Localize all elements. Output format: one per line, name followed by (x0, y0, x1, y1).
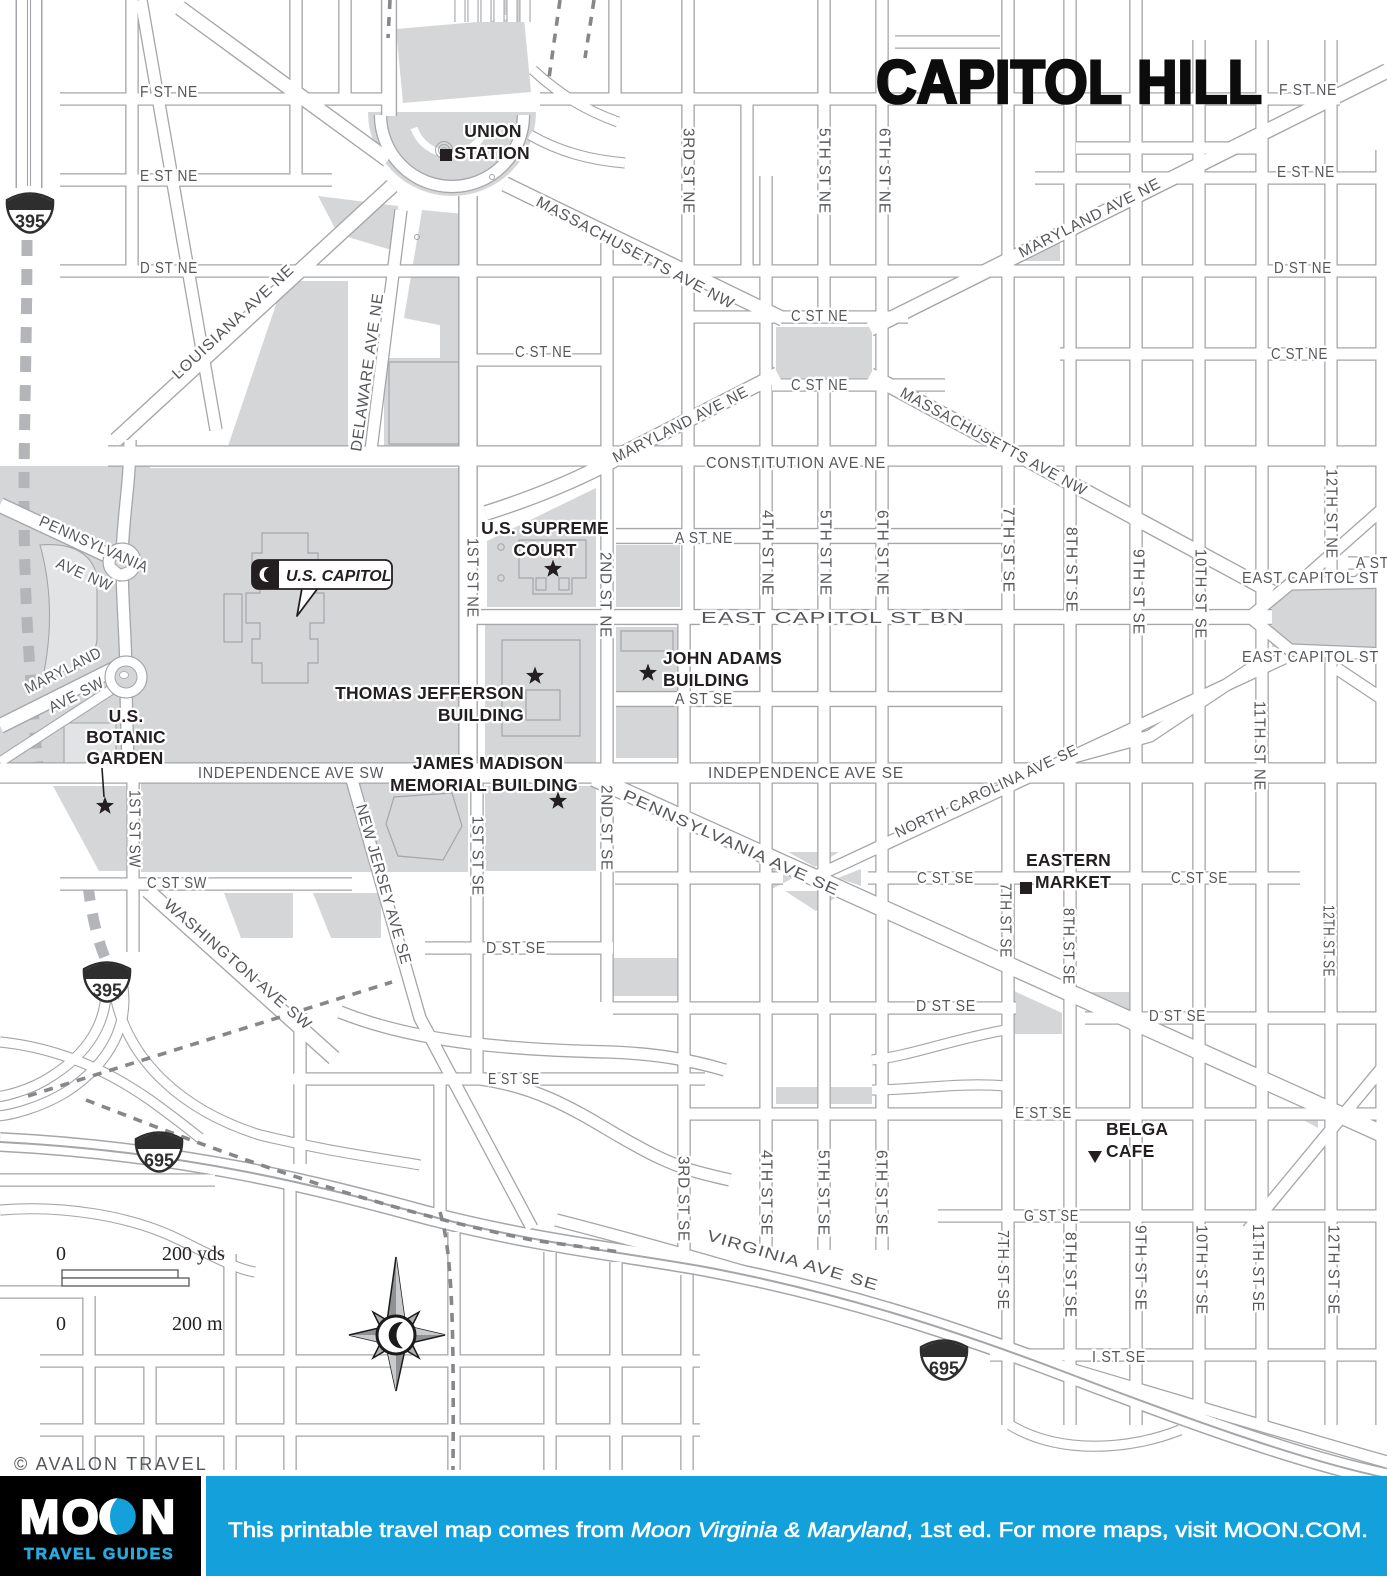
svg-text:12TH ST SE: 12TH ST SE (1320, 905, 1337, 977)
svg-text:7TH ST SE: 7TH ST SE (994, 1230, 1011, 1310)
svg-text:© AVALON TRAVEL: © AVALON TRAVEL (14, 1454, 208, 1474)
svg-text:C ST NE: C ST NE (791, 377, 848, 394)
svg-text:D ST SE: D ST SE (486, 940, 546, 957)
svg-text:JOHN ADAMS: JOHN ADAMS (663, 648, 782, 668)
svg-text:C ST SW: C ST SW (147, 875, 207, 892)
svg-text:10TH ST SE: 10TH ST SE (1192, 549, 1209, 639)
svg-text:MARKET: MARKET (1035, 872, 1111, 892)
svg-text:695: 695 (144, 1151, 174, 1171)
svg-text:N: N (141, 1490, 175, 1543)
svg-text:INDEPENDENCE AVE SE: INDEPENDENCE AVE SE (708, 765, 904, 782)
svg-text:5TH ST NE: 5TH ST NE (816, 128, 833, 214)
svg-text:EAST CAPITOL ST: EAST CAPITOL ST (1242, 649, 1379, 666)
svg-text:M: M (20, 1490, 59, 1543)
svg-text:BUILDING: BUILDING (438, 705, 524, 725)
svg-text:E ST SE: E ST SE (1015, 1105, 1072, 1122)
svg-text:12TH ST NE: 12TH ST NE (1323, 469, 1340, 559)
svg-text:I ST SE: I ST SE (1092, 1349, 1146, 1366)
svg-text:D ST NE: D ST NE (1274, 260, 1332, 277)
svg-text:D ST SE: D ST SE (916, 998, 976, 1015)
svg-text:This printable travel map come: This printable travel map comes from Moo… (228, 1518, 1368, 1542)
svg-text:O: O (62, 1490, 99, 1543)
svg-text:7TH ST SE: 7TH ST SE (997, 883, 1014, 958)
svg-text:A ST NE: A ST NE (675, 530, 733, 547)
svg-text:7TH ST SE: 7TH ST SE (1000, 507, 1017, 593)
svg-text:U.S.: U.S. (109, 706, 144, 726)
svg-text:6TH ST NE: 6TH ST NE (874, 510, 891, 596)
svg-text:D ST SE: D ST SE (1149, 1008, 1206, 1025)
svg-text:3RD ST NE: 3RD ST NE (680, 128, 697, 214)
svg-text:395: 395 (15, 212, 45, 232)
svg-text:F ST NE: F ST NE (140, 84, 198, 101)
svg-text:TRAVEL GUIDES: TRAVEL GUIDES (24, 1546, 174, 1563)
svg-text:11TH ST SE: 11TH ST SE (1249, 1224, 1266, 1312)
svg-text:CONSTITUTION AVE NE: CONSTITUTION AVE NE (706, 455, 886, 472)
svg-text:BUILDING: BUILDING (663, 670, 749, 690)
svg-text:6TH ST SE: 6TH ST SE (873, 1150, 890, 1236)
svg-text:0: 0 (56, 1243, 66, 1265)
svg-text:E ST NE: E ST NE (1277, 164, 1335, 181)
svg-text:9TH ST SE: 9TH ST SE (1130, 549, 1147, 635)
svg-text:2ND ST NE: 2ND ST NE (597, 552, 614, 638)
svg-text:9TH ST SE: 9TH ST SE (1132, 1225, 1149, 1311)
svg-text:G ST SE: G ST SE (1024, 1208, 1079, 1225)
svg-text:4TH ST NE: 4TH ST NE (759, 510, 776, 596)
svg-text:MEMORIAL BUILDING: MEMORIAL BUILDING (390, 775, 578, 795)
svg-text:EAST CAPITOL ST BN: EAST CAPITOL ST BN (701, 610, 965, 627)
svg-text:1ST ST SW: 1ST ST SW (126, 790, 143, 868)
svg-text:INDEPENDENCE AVE SW: INDEPENDENCE AVE SW (198, 765, 384, 782)
svg-text:8TH ST SE: 8TH ST SE (1062, 1232, 1079, 1318)
svg-text:200 m: 200 m (172, 1313, 223, 1335)
svg-text:D ST NE: D ST NE (140, 260, 198, 277)
svg-text:A ST SE: A ST SE (675, 691, 733, 708)
svg-text:695: 695 (929, 1359, 959, 1379)
svg-text:A ST NE: A ST NE (1356, 555, 1387, 572)
svg-text:COURT: COURT (513, 540, 576, 560)
svg-text:F ST NE: F ST NE (1279, 82, 1337, 99)
svg-text:EASTERN: EASTERN (1026, 850, 1111, 870)
svg-text:5TH ST SE: 5TH ST SE (815, 1150, 832, 1236)
svg-text:3RD ST SE: 3RD ST SE (675, 1156, 692, 1242)
svg-text:0: 0 (56, 1313, 66, 1335)
svg-text:2ND ST SE: 2ND ST SE (598, 785, 615, 871)
svg-text:UNION: UNION (464, 121, 521, 141)
svg-text:200 yds: 200 yds (162, 1243, 225, 1265)
svg-text:4TH ST SE: 4TH ST SE (758, 1150, 775, 1236)
svg-text:5TH ST NE: 5TH ST NE (817, 510, 834, 596)
svg-text:U.S. SUPREME: U.S. SUPREME (481, 518, 609, 538)
svg-text:12TH ST SE: 12TH ST SE (1325, 1225, 1342, 1315)
svg-text:1ST ST NE: 1ST ST NE (464, 538, 481, 618)
svg-text:C ST SE: C ST SE (917, 870, 974, 887)
svg-text:C ST SE: C ST SE (1171, 870, 1228, 887)
svg-text:CAFE: CAFE (1106, 1141, 1154, 1161)
svg-text:THOMAS JEFFERSON: THOMAS JEFFERSON (335, 683, 524, 703)
svg-text:BELGA: BELGA (1106, 1119, 1168, 1139)
svg-text:STATION: STATION (454, 143, 530, 163)
svg-text:CAPITOL HILL: CAPITOL HILL (876, 48, 1262, 116)
svg-text:C ST NE: C ST NE (791, 308, 848, 325)
svg-text:GARDEN: GARDEN (86, 748, 163, 768)
svg-text:C ST NE: C ST NE (1271, 346, 1328, 363)
svg-text:11TH ST NE: 11TH ST NE (1251, 701, 1268, 791)
svg-text:JAMES MADISON: JAMES MADISON (413, 753, 563, 773)
svg-text:10TH ST SE: 10TH ST SE (1193, 1225, 1210, 1315)
svg-text:8TH ST SE: 8TH ST SE (1063, 527, 1080, 613)
svg-text:BOTANIC: BOTANIC (86, 727, 166, 747)
svg-text:E ST NE: E ST NE (140, 168, 198, 185)
svg-text:6TH ST NE: 6TH ST NE (876, 128, 893, 214)
svg-text:E ST SE: E ST SE (488, 1071, 540, 1088)
svg-text:U.S. CAPITOL: U.S. CAPITOL (286, 568, 392, 585)
svg-text:EAST CAPITOL ST: EAST CAPITOL ST (1242, 570, 1379, 587)
svg-text:8TH ST SE: 8TH ST SE (1060, 908, 1077, 985)
svg-text:395: 395 (92, 981, 122, 1001)
svg-text:C ST NE: C ST NE (515, 344, 572, 361)
svg-text:1ST ST SE: 1ST ST SE (469, 816, 486, 896)
